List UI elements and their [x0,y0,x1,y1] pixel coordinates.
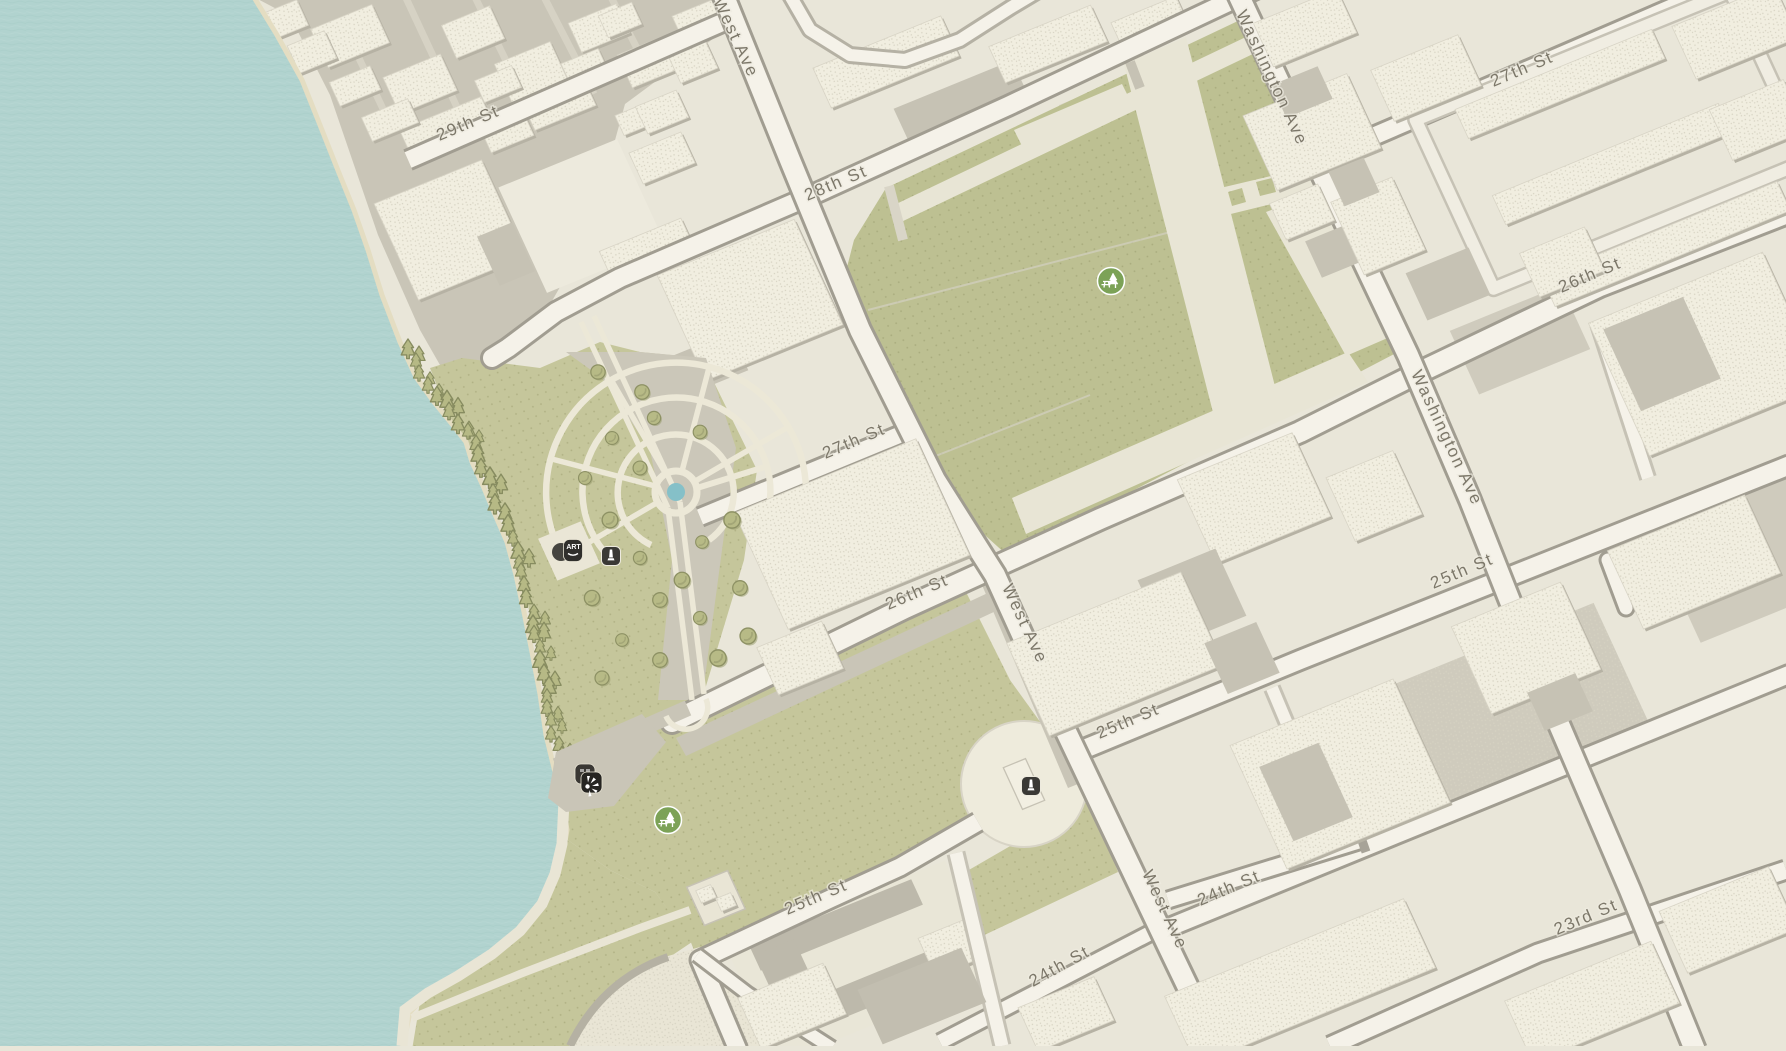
svg-text:ART: ART [566,544,581,551]
